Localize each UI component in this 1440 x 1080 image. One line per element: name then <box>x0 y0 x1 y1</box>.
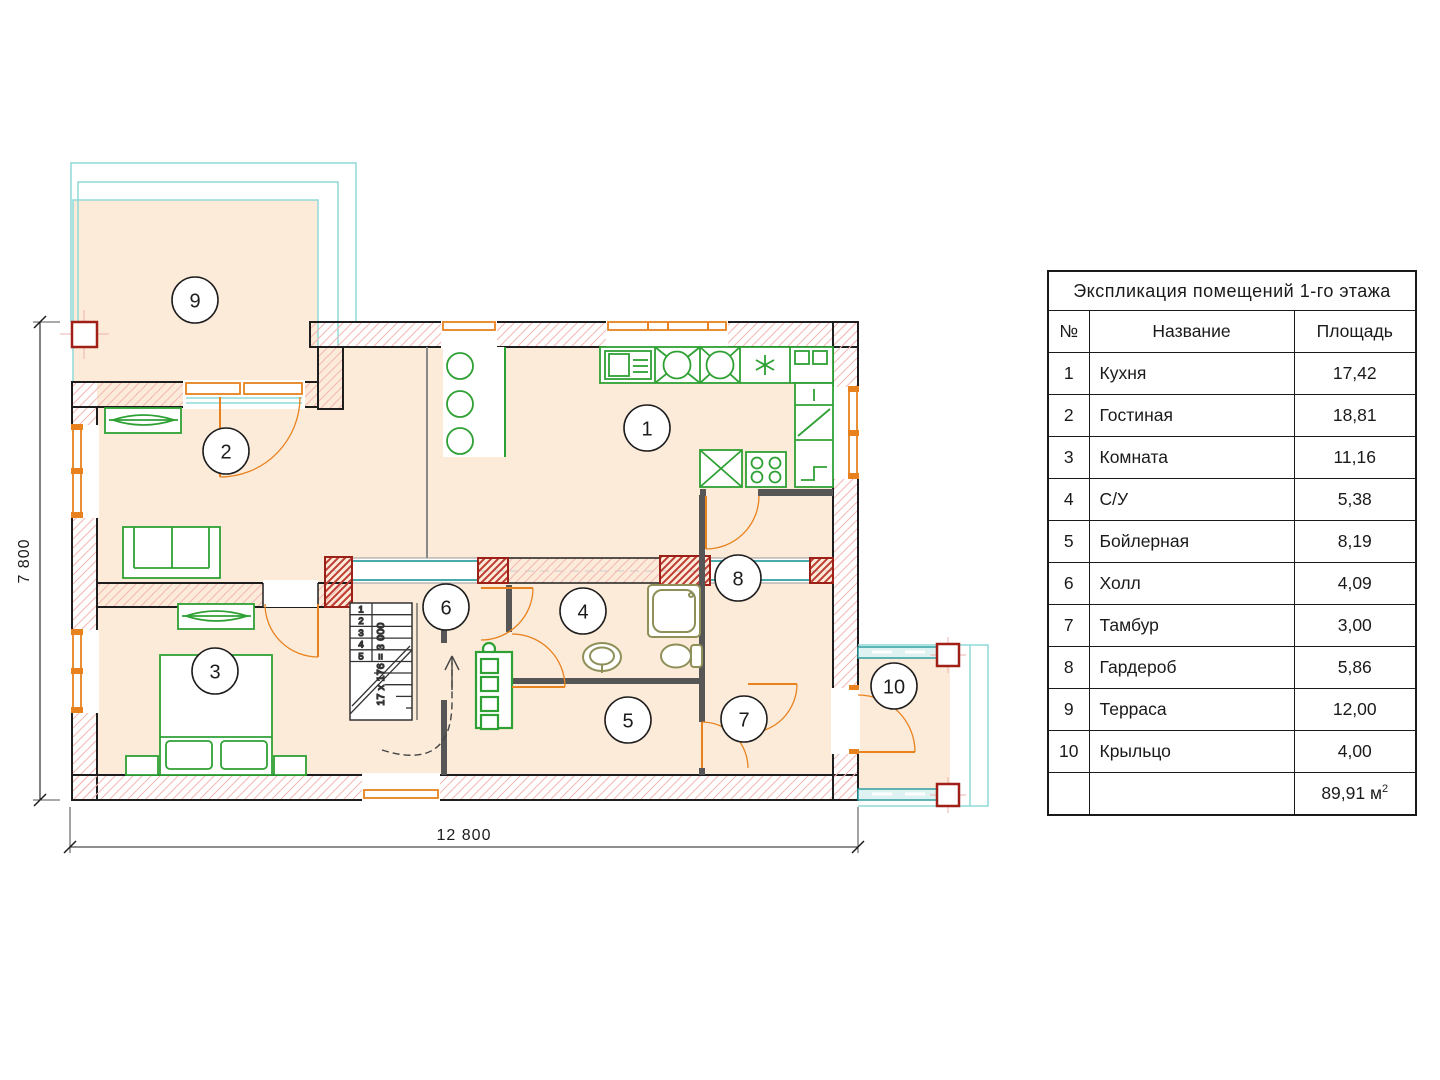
cell-num: 10 <box>1048 731 1089 773</box>
cell-area: 4,09 <box>1294 563 1416 605</box>
porch-post <box>937 784 959 806</box>
room-label-bedroom: 3 <box>192 648 238 694</box>
stair-step-number: 4 <box>358 640 363 651</box>
cell-name: Гардероб <box>1089 647 1294 689</box>
table-row: 2 Гостиная 18,81 <box>1048 395 1416 437</box>
partition-wardrobe-west <box>699 495 705 583</box>
cell-area: 4,00 <box>1294 731 1416 773</box>
room-number: 7 <box>738 710 749 732</box>
table-row: 4 С/У 5,38 <box>1048 479 1416 521</box>
cell-empty <box>1089 773 1294 816</box>
room-number: 9 <box>189 291 200 313</box>
kitchen-sink <box>664 352 691 379</box>
porch-post <box>937 644 959 666</box>
dim-width-label: 12 800 <box>437 827 492 844</box>
cell-name: Тамбур <box>1089 605 1294 647</box>
room-number: 5 <box>622 711 633 733</box>
table-row: 9 Терраса 12,00 <box>1048 689 1416 731</box>
room-label-boiler: 5 <box>605 697 651 743</box>
room-label-vestibule: 7 <box>721 696 767 742</box>
col-header-num: № <box>1048 311 1089 353</box>
cell-area: 12,00 <box>1294 689 1416 731</box>
table-row: 10 Крыльцо 4,00 <box>1048 731 1416 773</box>
cell-num: 5 <box>1048 521 1089 563</box>
table-row: 8 Гардероб 5,86 <box>1048 647 1416 689</box>
cell-area: 17,42 <box>1294 353 1416 395</box>
partition-wardrobe-north2 <box>758 489 833 496</box>
wall-top <box>310 322 858 347</box>
cell-name: Терраса <box>1089 689 1294 731</box>
pier <box>478 558 508 583</box>
room-number: 2 <box>220 442 231 464</box>
room-number: 4 <box>577 602 588 624</box>
bedroom-door-opening <box>263 580 318 607</box>
cell-area: 5,86 <box>1294 647 1416 689</box>
table-row: 1 Кухня 17,42 <box>1048 353 1416 395</box>
cell-name: Крыльцо <box>1089 731 1294 773</box>
stair-step-number: 5 <box>358 651 363 662</box>
cell-total: 89,91 м2 <box>1294 773 1416 816</box>
cell-name: Бойлерная <box>1089 521 1294 563</box>
stair-step-number: 2 <box>358 616 363 627</box>
stair-step-number: 1 <box>358 605 363 616</box>
cell-area: 8,19 <box>1294 521 1416 563</box>
partition-bath-west <box>506 585 512 632</box>
room-number: 8 <box>732 569 743 591</box>
pier <box>325 557 352 607</box>
stove <box>746 452 786 487</box>
partition-vestibule-west <box>699 683 705 722</box>
room-label-terrace: 9 <box>172 277 218 323</box>
table-row: 7 Тамбур 3,00 <box>1048 605 1416 647</box>
cell-name: Кухня <box>1089 353 1294 395</box>
cell-name: Гостиная <box>1089 395 1294 437</box>
room-label-bathroom: 4 <box>560 588 606 634</box>
room-label-porch: 10 <box>871 663 917 709</box>
bar-stool <box>447 353 473 379</box>
nightstand <box>126 756 158 775</box>
room-label-living: 2 <box>203 428 249 474</box>
wall-bottom <box>72 775 858 800</box>
total-value: 89,91 <box>1321 783 1365 803</box>
bar-stool <box>447 391 473 417</box>
cell-num: 6 <box>1048 563 1089 605</box>
terrace-post <box>72 322 97 347</box>
cell-area: 11,16 <box>1294 437 1416 479</box>
room-label-wardrobe: 8 <box>715 555 761 601</box>
room-label-kitchen: 1 <box>624 405 670 451</box>
total-unit: м <box>1370 783 1382 803</box>
cell-name: Холл <box>1089 563 1294 605</box>
col-header-area: Площадь <box>1294 311 1416 353</box>
entrance-opening <box>831 688 860 754</box>
drawing-sheet: 1 2 3 4 5 17 x 176 = 3 000 <box>0 0 1440 1080</box>
table-total-row: 89,91 м2 <box>1048 773 1416 816</box>
partition-stub <box>699 768 705 775</box>
room-schedule: Экспликация помещений 1-го этажа № Назва… <box>1047 270 1417 816</box>
wall-mid <box>508 558 660 583</box>
cell-empty <box>1048 773 1089 816</box>
cell-num: 4 <box>1048 479 1089 521</box>
dim-height-label: 7 800 <box>16 538 33 583</box>
table-row: 6 Холл 4,09 <box>1048 563 1416 605</box>
boiler-unit <box>476 643 512 729</box>
room-number: 6 <box>440 598 451 620</box>
room-schedule-table: Экспликация помещений 1-го этажа № Назва… <box>1047 270 1417 816</box>
wall-terrace-step <box>318 347 343 409</box>
partition-bath-south <box>512 678 699 684</box>
pier <box>810 558 833 583</box>
cell-num: 7 <box>1048 605 1089 647</box>
cell-area: 5,38 <box>1294 479 1416 521</box>
cell-num: 1 <box>1048 353 1089 395</box>
nightstand <box>274 756 306 775</box>
partition-wardrobe-north <box>700 489 706 496</box>
col-header-name: Название <box>1089 311 1294 353</box>
room-number: 1 <box>641 419 652 441</box>
room-number: 10 <box>883 677 905 699</box>
table-title: Экспликация помещений 1-го этажа <box>1048 271 1416 311</box>
stair-step-number: 3 <box>358 628 363 639</box>
room-label-hall: 6 <box>423 584 469 630</box>
cell-num: 2 <box>1048 395 1089 437</box>
bar-stool <box>447 428 473 454</box>
cell-area: 3,00 <box>1294 605 1416 647</box>
cell-name: С/У <box>1089 479 1294 521</box>
cell-num: 3 <box>1048 437 1089 479</box>
room-number: 3 <box>209 662 220 684</box>
cell-num: 8 <box>1048 647 1089 689</box>
stair-formula: 17 x 176 = 3 000 <box>375 622 387 705</box>
cell-area: 18,81 <box>1294 395 1416 437</box>
kitchen-sink-2 <box>707 352 734 379</box>
cell-name: Комната <box>1089 437 1294 479</box>
toilet <box>661 645 691 668</box>
table-row: 3 Комната 11,16 <box>1048 437 1416 479</box>
table-row: 5 Бойлерная 8,19 <box>1048 521 1416 563</box>
total-sup: 2 <box>1382 783 1388 795</box>
cell-num: 9 <box>1048 689 1089 731</box>
